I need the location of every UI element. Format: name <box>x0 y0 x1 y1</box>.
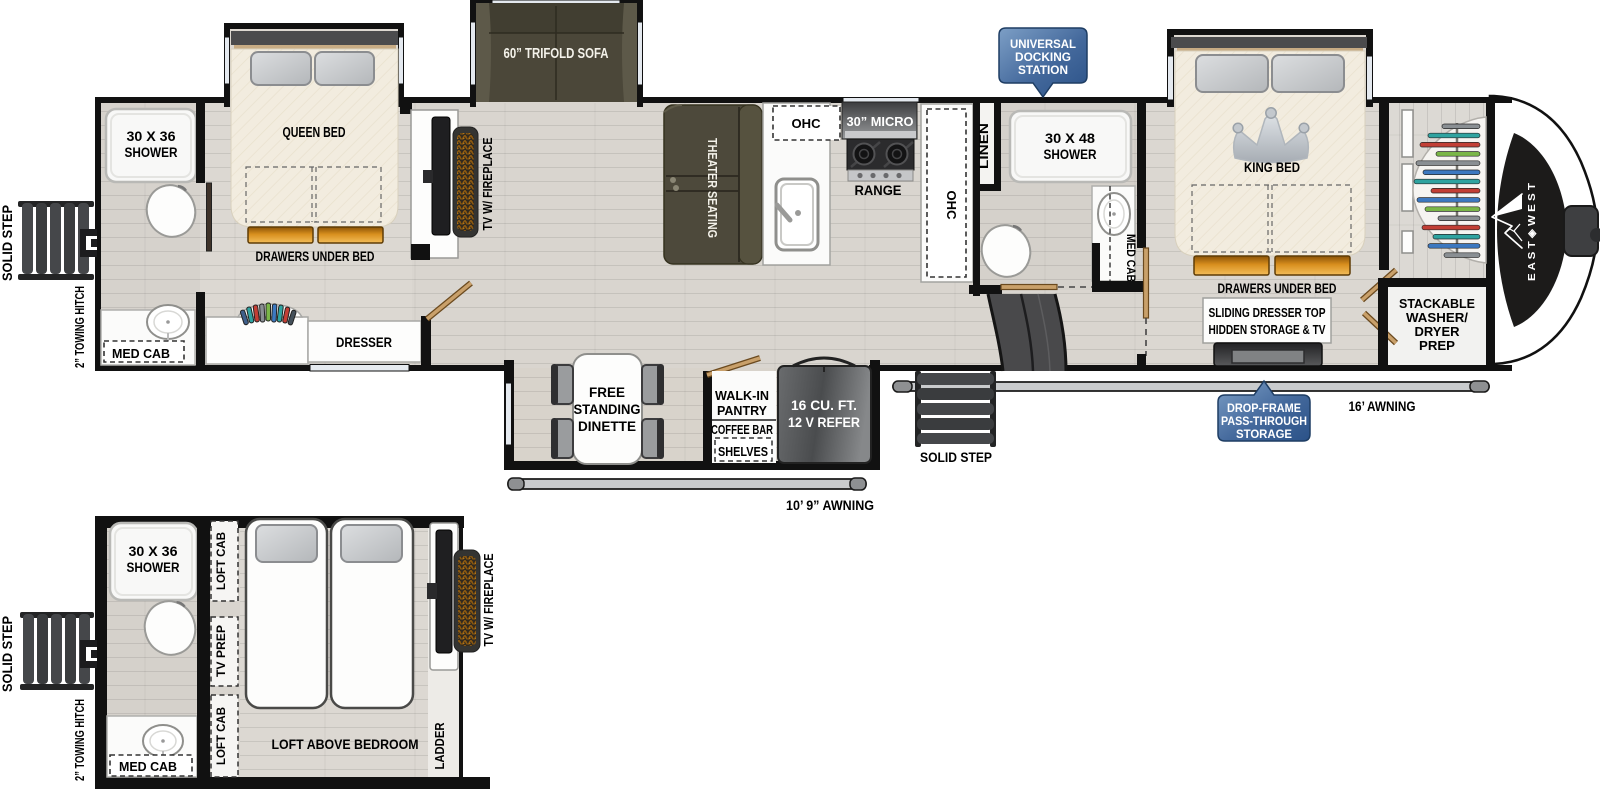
svg-text:OHC: OHC <box>792 116 822 131</box>
svg-text:WASHER/: WASHER/ <box>1406 310 1468 325</box>
svg-text:SHOWER: SHOWER <box>125 145 178 160</box>
svg-text:30 X 36: 30 X 36 <box>127 129 177 144</box>
svg-text:SOLID STEP: SOLID STEP <box>920 450 992 465</box>
svg-text:10’ 9” AWNING: 10’ 9” AWNING <box>786 498 874 513</box>
svg-text:2” TOWING HITCH: 2” TOWING HITCH <box>73 699 87 781</box>
svg-text:SLIDING DRESSER TOP: SLIDING DRESSER TOP <box>1209 306 1326 320</box>
svg-text:STANDING: STANDING <box>574 402 641 417</box>
svg-text:MED CAB: MED CAB <box>1124 234 1136 282</box>
svg-text:WALK-IN: WALK-IN <box>715 388 769 403</box>
svg-text:LOFT CAB: LOFT CAB <box>214 707 228 765</box>
svg-text:LINEN: LINEN <box>979 123 991 169</box>
svg-text:16 CU. FT.: 16 CU. FT. <box>791 398 857 413</box>
svg-text:LOFT CAB: LOFT CAB <box>214 532 228 590</box>
svg-text:KING BED: KING BED <box>1244 159 1300 175</box>
svg-text:PREP: PREP <box>1419 338 1455 353</box>
svg-text:STATION: STATION <box>1018 63 1068 77</box>
svg-text:TV W/ FIREPLACE: TV W/ FIREPLACE <box>481 138 495 231</box>
svg-text:2” TOWING HITCH: 2” TOWING HITCH <box>73 286 87 368</box>
svg-text:DOCKING: DOCKING <box>1015 50 1071 64</box>
svg-text:COFFEE BAR: COFFEE BAR <box>711 423 773 437</box>
svg-text:E A S T ◈ W E S T: E A S T ◈ W E S T <box>1526 182 1538 281</box>
svg-text:HIDDEN STORAGE & TV: HIDDEN STORAGE & TV <box>1209 323 1327 337</box>
svg-text:STACKABLE: STACKABLE <box>1399 296 1475 311</box>
svg-text:SHOWER: SHOWER <box>1044 147 1097 162</box>
svg-text:DRAWERS UNDER BED: DRAWERS UNDER BED <box>1218 281 1337 296</box>
svg-text:UNIVERSAL: UNIVERSAL <box>1010 37 1076 51</box>
svg-text:30 X 36: 30 X 36 <box>129 544 179 559</box>
svg-text:30” MICRO: 30” MICRO <box>847 114 914 129</box>
svg-text:SOLID STEP: SOLID STEP <box>0 205 15 281</box>
svg-text:12 V REFER: 12 V REFER <box>788 415 860 430</box>
svg-text:FREE: FREE <box>589 385 625 400</box>
svg-text:STORAGE: STORAGE <box>1236 427 1292 441</box>
svg-text:PASS-THROUGH: PASS-THROUGH <box>1221 414 1307 428</box>
svg-text:PANTRY: PANTRY <box>717 403 767 418</box>
svg-text:RANGE: RANGE <box>855 183 902 198</box>
svg-text:DRYER: DRYER <box>1415 324 1461 339</box>
svg-text:30 X 48: 30 X 48 <box>1045 131 1096 146</box>
svg-text:THEATER SEATING: THEATER SEATING <box>705 138 720 238</box>
svg-text:QUEEN BED: QUEEN BED <box>283 125 346 141</box>
svg-text:SHOWER: SHOWER <box>127 560 180 575</box>
svg-text:SHELVES: SHELVES <box>718 445 768 459</box>
svg-text:SOLID STEP: SOLID STEP <box>0 616 15 692</box>
svg-text:MED CAB: MED CAB <box>119 760 177 774</box>
svg-text:MED CAB: MED CAB <box>112 347 170 361</box>
svg-text:16’ AWNING: 16’ AWNING <box>1349 399 1416 414</box>
svg-text:LOFT ABOVE BEDROOM: LOFT ABOVE BEDROOM <box>272 737 419 752</box>
svg-text:TV PREP: TV PREP <box>214 625 228 677</box>
svg-text:DROP-FRAME: DROP-FRAME <box>1227 401 1301 415</box>
svg-text:DRESSER: DRESSER <box>336 335 392 350</box>
svg-text:TV W/ FIREPLACE: TV W/ FIREPLACE <box>482 554 496 647</box>
svg-text:DINETTE: DINETTE <box>578 419 636 434</box>
svg-text:LADDER: LADDER <box>433 723 447 770</box>
svg-text:OHC: OHC <box>944 191 959 221</box>
svg-text:60” TRIFOLD SOFA: 60” TRIFOLD SOFA <box>504 46 609 62</box>
svg-text:DRAWERS UNDER BED: DRAWERS UNDER BED <box>256 249 375 264</box>
